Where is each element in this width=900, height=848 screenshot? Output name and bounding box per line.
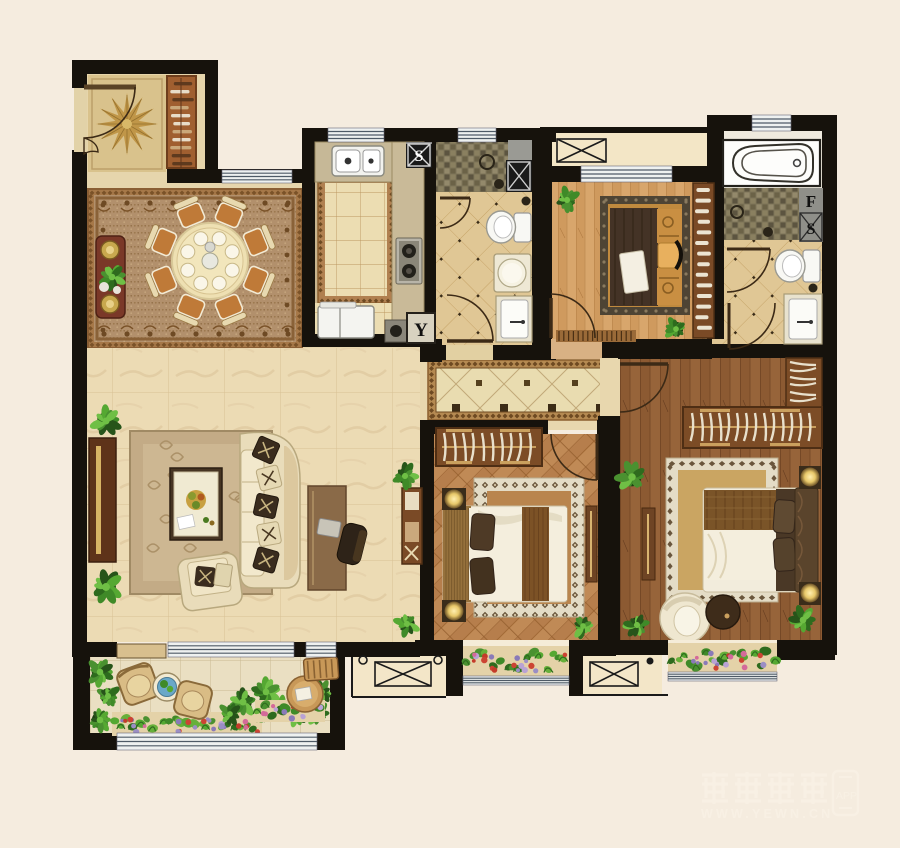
svg-text:APP: APP (836, 790, 857, 802)
svg-text:WWW.YEWN.CN: WWW.YEWN.CN (701, 807, 833, 821)
svg-text:S: S (415, 148, 424, 165)
svg-text:F: F (806, 192, 816, 211)
svg-text:Y: Y (414, 320, 428, 341)
svg-text:S: S (807, 221, 816, 238)
